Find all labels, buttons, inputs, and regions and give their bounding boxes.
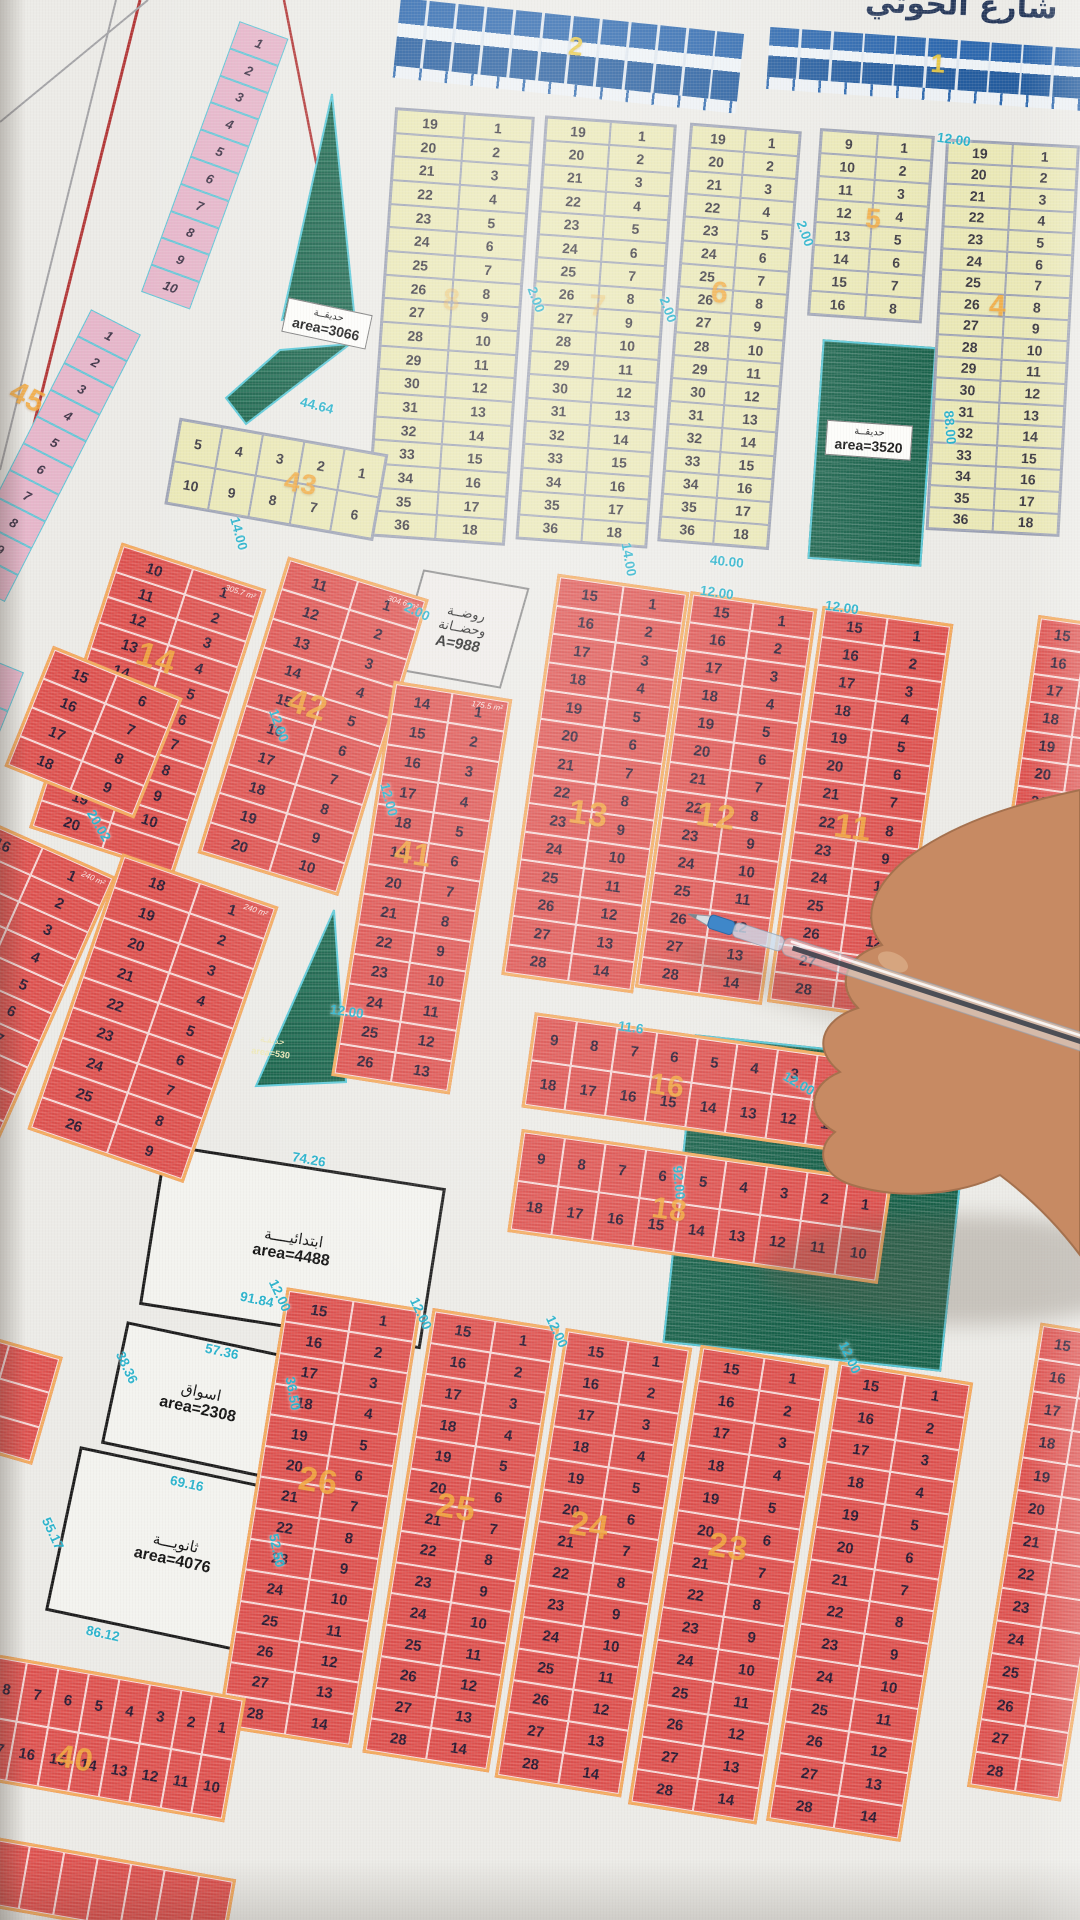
garden-triangle-3066 [282, 94, 354, 320]
plot: 5 [174, 420, 222, 469]
plot: 8 [249, 476, 297, 525]
plot: 15 [645, 1077, 691, 1127]
plot [1014, 1758, 1063, 1798]
plot: 14 [685, 1083, 731, 1133]
plot [653, 25, 686, 95]
plot: 18 [525, 1060, 571, 1110]
plot [925, 38, 958, 90]
plot: 17 [551, 1187, 598, 1241]
plot: 8 [865, 295, 922, 322]
plot: 1 [851, 1061, 897, 1111]
plot: 13 [713, 1209, 760, 1263]
plot [480, 7, 513, 77]
garden-triangle-530 [256, 910, 346, 1086]
plot: 12 [765, 1094, 811, 1144]
plot: 7 [290, 483, 338, 532]
plot [1020, 45, 1053, 97]
block-y-4: 1912022132242352462572682792810291130123… [926, 138, 1080, 536]
plot: 36 [659, 516, 715, 543]
plot: 11 [794, 1221, 841, 1275]
plot [423, 1, 456, 71]
plot: 5 [680, 1155, 727, 1209]
plot: 12 [754, 1215, 801, 1269]
plot: 18 [581, 519, 646, 547]
plot: 36 [928, 507, 994, 532]
plot [595, 19, 628, 89]
site-plan-map: شارع الحوتي حديقــة area=3520 حديقــة ar… [0, 0, 1080, 1920]
plot: 4 [215, 427, 263, 476]
block-y-5: 911021131241351461571685 [807, 128, 935, 324]
plot: 8 [558, 1138, 605, 1192]
plot: 4 [720, 1161, 767, 1215]
plot: 18 [713, 521, 769, 548]
plot: 9 [531, 1016, 577, 1066]
plot: 2 [297, 442, 345, 491]
plot: 28 [986, 981, 1036, 1015]
plot: 3 [256, 434, 304, 483]
garden-3520: حديقــة area=3520 [807, 339, 936, 566]
plot: 6 [651, 1033, 697, 1083]
plot: 36 [518, 514, 583, 542]
plot: 16 [592, 1192, 639, 1246]
plot [799, 29, 832, 81]
plot: 18 [511, 1181, 558, 1235]
plot [862, 34, 895, 86]
plot [989, 43, 1022, 95]
plot: 9 [518, 1132, 565, 1186]
plot: 5 [691, 1038, 737, 1088]
block-y-8: 1912022132242352462572682792810291130123… [365, 107, 535, 546]
plot: 11 [805, 1100, 851, 1150]
plot: 28 [970, 1752, 1019, 1792]
plot [830, 31, 863, 83]
plot: 13 [725, 1088, 771, 1138]
plot: 1 [338, 449, 386, 498]
garden-3520-label: حديقــة area=3520 [825, 420, 913, 461]
dimension-label: 88.00 [941, 410, 959, 445]
plot: 10 [835, 1226, 882, 1280]
plot: 6 [330, 490, 378, 539]
plot: 10 [167, 461, 215, 510]
plot: 10 [845, 1105, 891, 1155]
plot: 4 [731, 1044, 777, 1094]
plot: 2 [811, 1055, 857, 1105]
plot [509, 10, 542, 80]
plot [1052, 47, 1080, 99]
plot: 16 [809, 291, 866, 318]
plot [767, 27, 800, 79]
plot: 18 [435, 515, 504, 543]
plot [1033, 987, 1080, 1021]
plot: 16 [605, 1071, 651, 1121]
plot [451, 4, 484, 74]
plot: 18 [993, 510, 1059, 535]
plot: 1 [841, 1178, 888, 1232]
plot: 2 [801, 1172, 848, 1226]
dimension-label: 92.00 [670, 1165, 688, 1200]
plot [894, 36, 927, 88]
plot [567, 16, 600, 86]
plot [957, 40, 990, 92]
plot: 9 [208, 468, 256, 517]
plot [682, 28, 715, 98]
plot [538, 13, 571, 83]
plot: 14 [673, 1204, 720, 1258]
plot: 15 [632, 1198, 679, 1252]
plot [624, 22, 657, 92]
plot: 7 [599, 1144, 646, 1198]
plot: 3 [761, 1167, 808, 1221]
plot: 17 [565, 1066, 611, 1116]
plot [394, 0, 427, 68]
plot: 36 [367, 511, 436, 539]
plot: 8 [571, 1021, 617, 1071]
